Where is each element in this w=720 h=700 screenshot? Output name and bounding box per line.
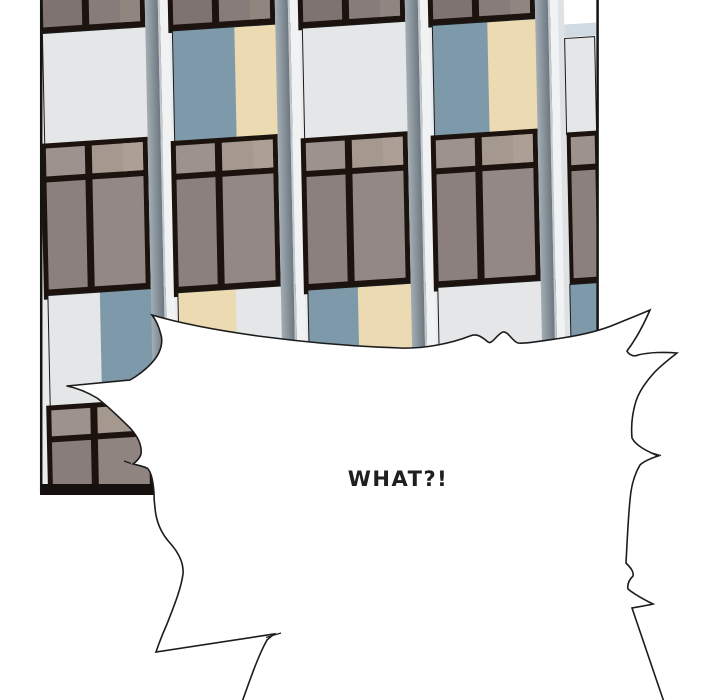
panel-bottom-bar <box>40 484 156 495</box>
speech-bubble-shape <box>67 310 677 700</box>
comic-page: WHAT?! <box>0 0 720 700</box>
speech-bubble-text: WHAT?! <box>348 467 448 491</box>
comic-panel-svg: WHAT?! <box>0 0 720 700</box>
